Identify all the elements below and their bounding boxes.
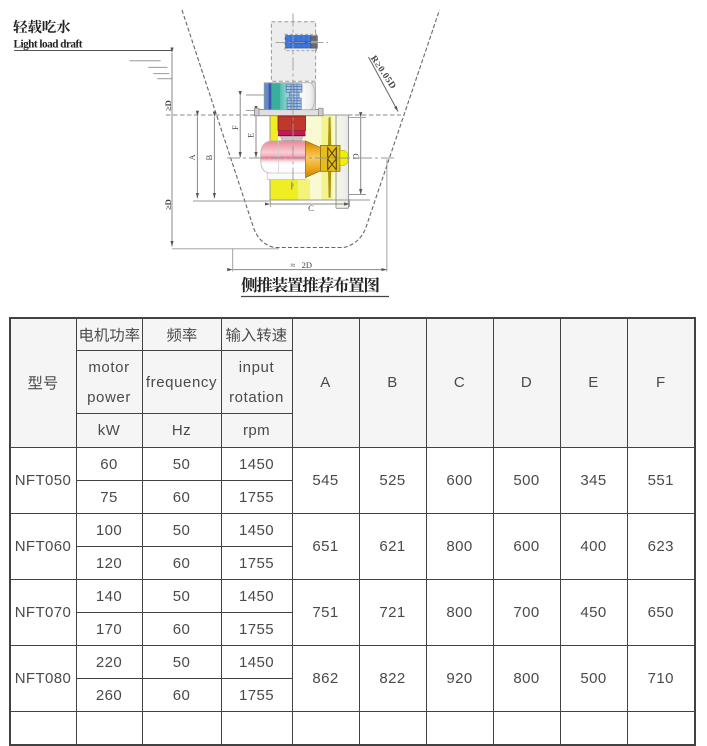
svg-text:A: A [187,154,197,161]
svg-text:≥D: ≥D [163,199,173,210]
svg-text:B: B [204,155,214,161]
svg-text:Light load draft: Light load draft [14,39,83,51]
svg-text:C: C [308,203,314,213]
svg-text:≥D: ≥D [163,100,173,111]
svg-text:F: F [230,125,240,130]
svg-text:E: E [246,133,256,138]
svg-text:D: D [350,153,360,159]
svg-text:R≥0.05D: R≥0.05D [368,54,398,91]
svg-text:≈2D: ≈2D [291,260,313,270]
